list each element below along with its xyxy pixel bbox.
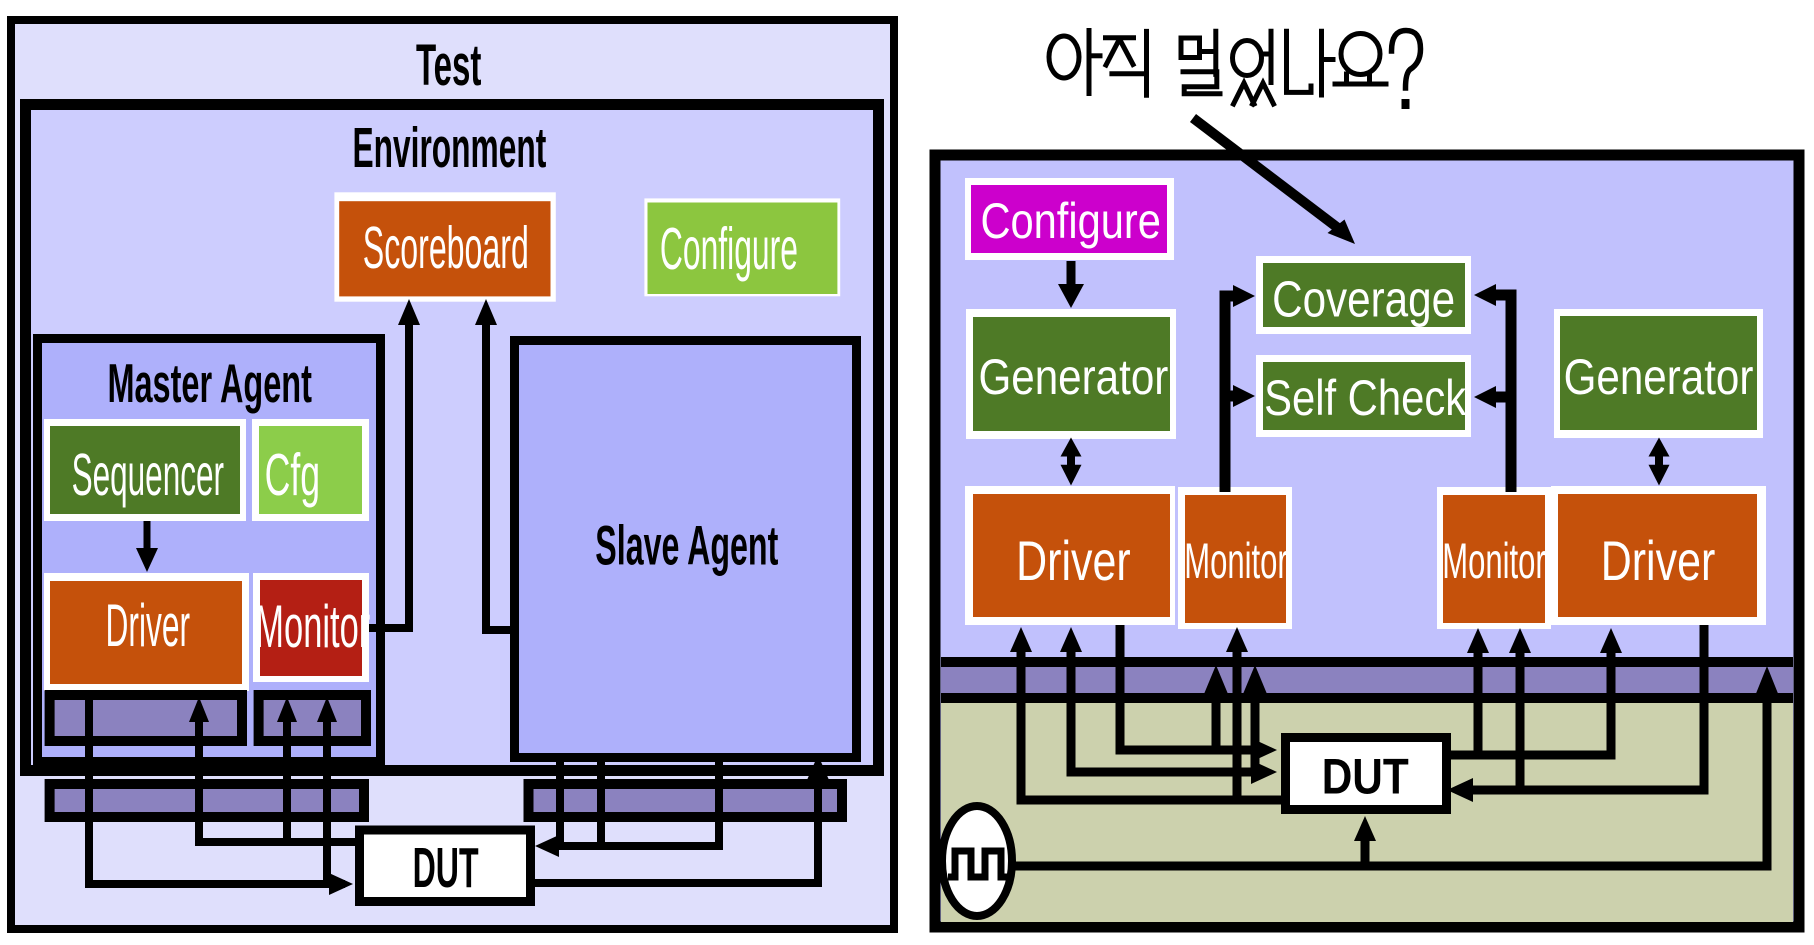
svg-text:Slave Agent: Slave Agent	[595, 514, 778, 577]
svg-text:Configure: Configure	[980, 193, 1161, 249]
svg-text:Monitor: Monitor	[1184, 533, 1288, 589]
svg-text:Configure: Configure	[660, 216, 798, 282]
svg-text:Environment: Environment	[353, 116, 547, 180]
svg-text:Monitor: Monitor	[255, 593, 370, 660]
svg-text:Driver: Driver	[1016, 529, 1131, 592]
svg-text:Scoreboard: Scoreboard	[363, 215, 529, 281]
svg-text:Driver: Driver	[1601, 529, 1716, 592]
svg-text:Sequencer: Sequencer	[72, 442, 224, 508]
svg-text:Cfg: Cfg	[265, 442, 321, 508]
svg-text:Master Agent: Master Agent	[107, 352, 312, 414]
svg-text:Monitor: Monitor	[1442, 533, 1546, 589]
svg-text:DUT: DUT	[413, 836, 479, 900]
svg-text:Self Check: Self Check	[1264, 370, 1467, 426]
svg-text:Coverage: Coverage	[1272, 270, 1455, 327]
svg-text:Generator: Generator	[979, 349, 1169, 405]
svg-text:DUT: DUT	[1322, 748, 1409, 804]
svg-text:Driver: Driver	[106, 592, 191, 659]
svg-text:Test: Test	[416, 33, 482, 98]
svg-text:Generator: Generator	[1564, 349, 1754, 405]
